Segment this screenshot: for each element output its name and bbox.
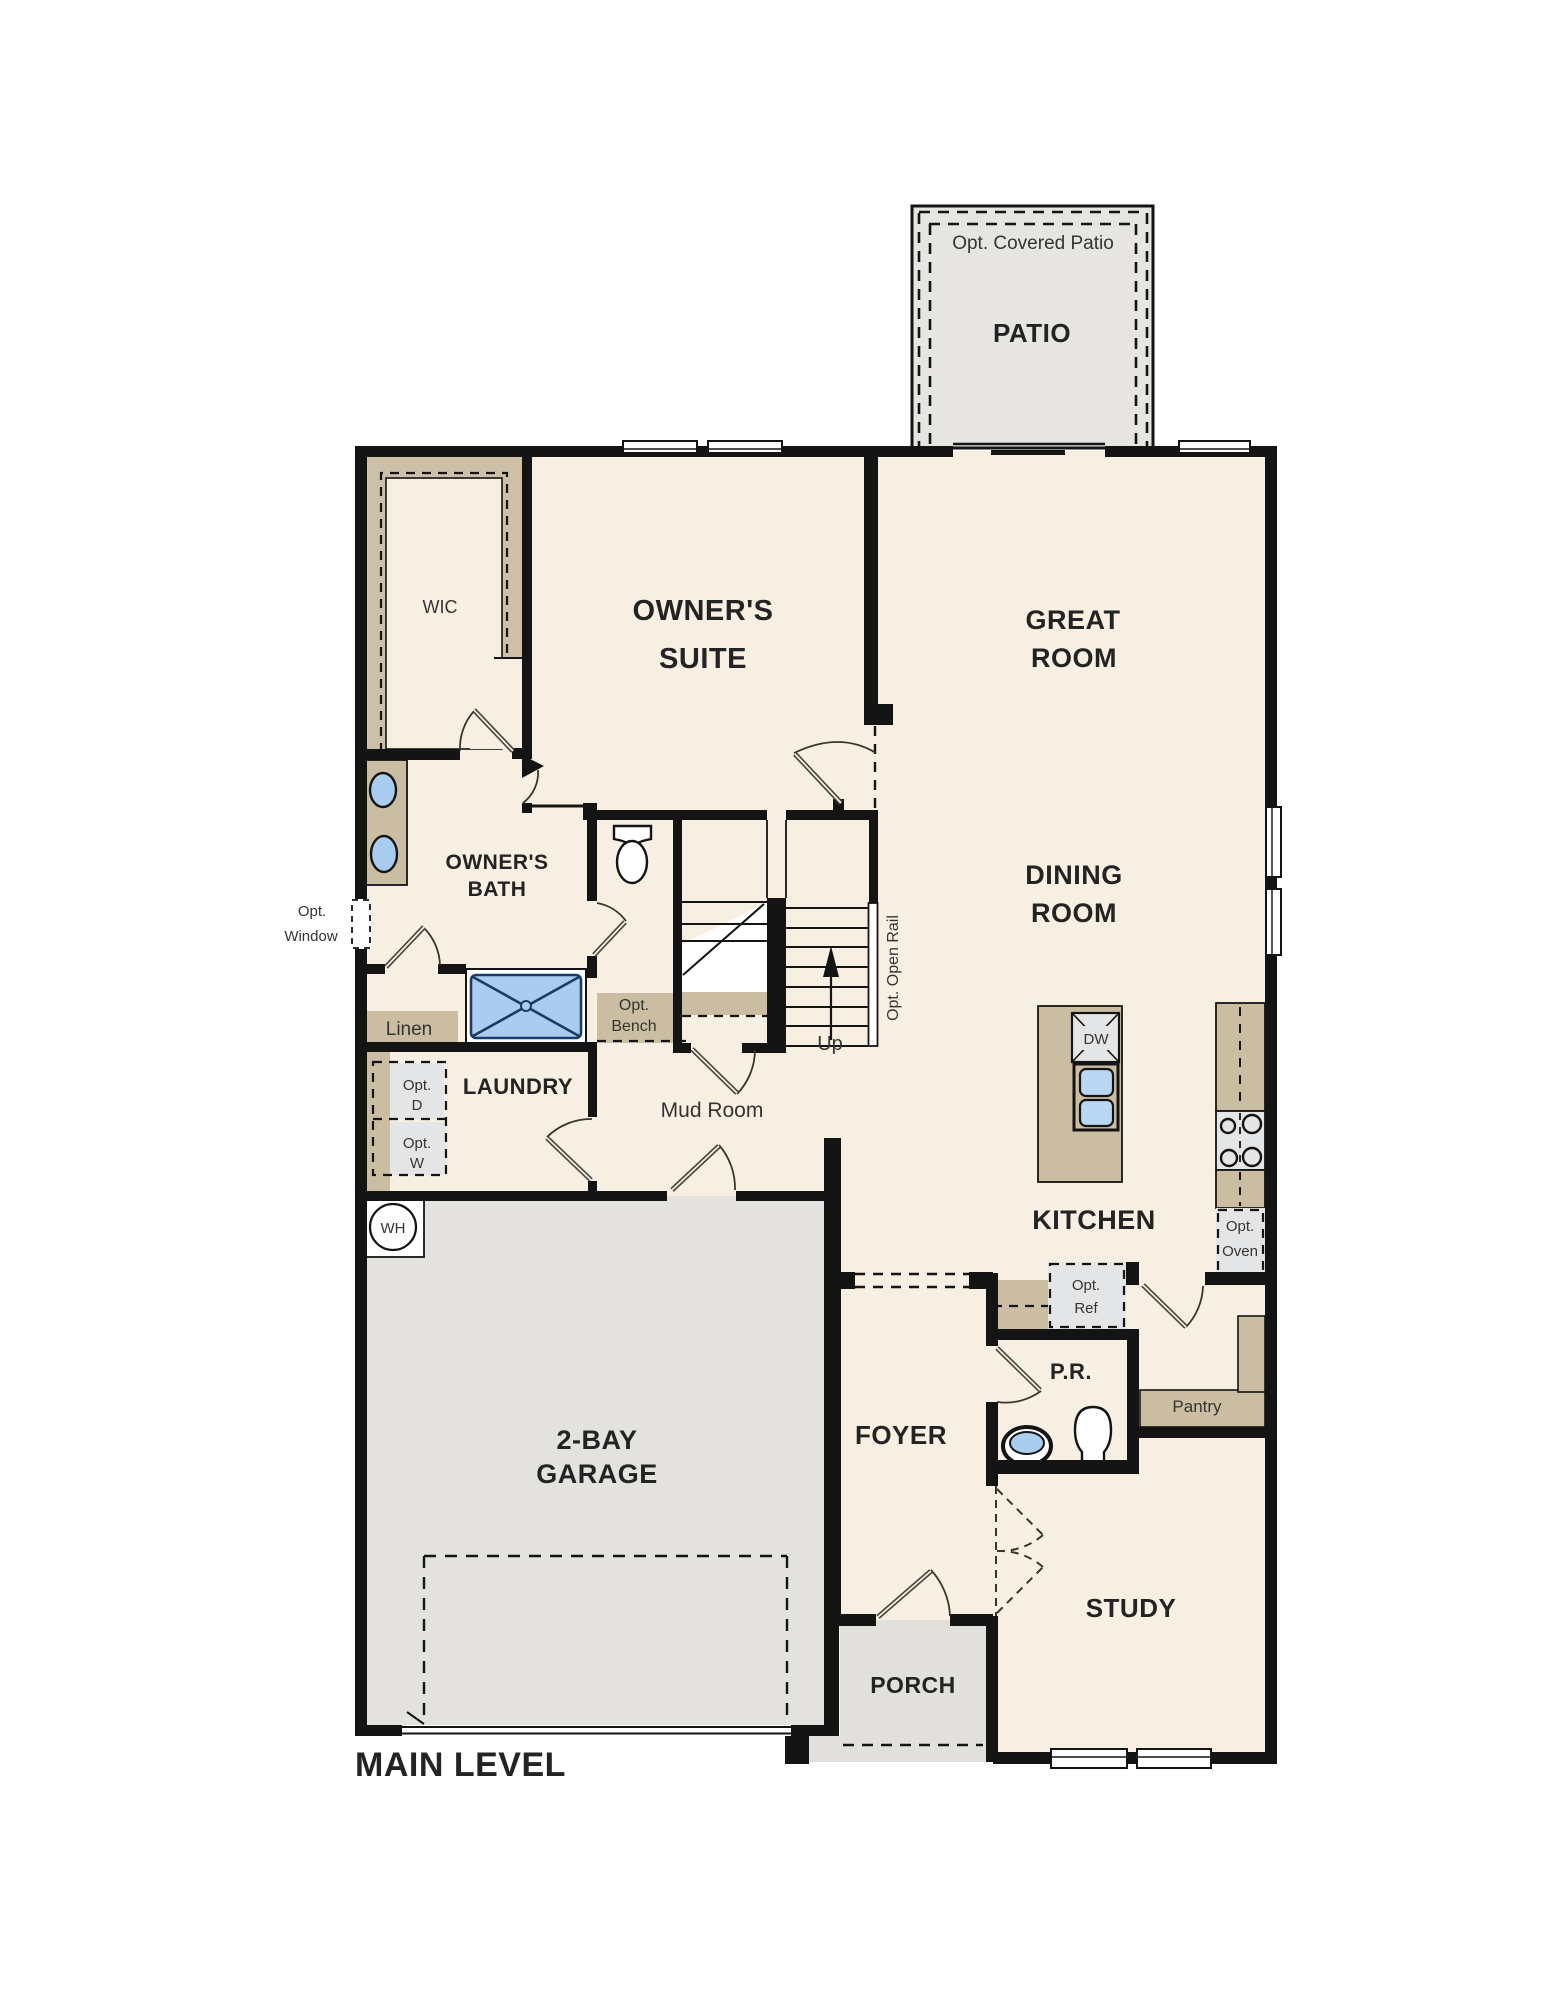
svg-text:Oven: Oven — [1222, 1243, 1258, 1260]
svg-text:KITCHEN: KITCHEN — [1032, 1205, 1156, 1235]
svg-text:D: D — [412, 1097, 423, 1114]
svg-text:Linen: Linen — [386, 1019, 433, 1040]
svg-text:P.R.: P.R. — [1050, 1359, 1092, 1384]
svg-text:MAIN LEVEL: MAIN LEVEL — [355, 1746, 566, 1784]
svg-text:DINING: DINING — [1025, 860, 1123, 890]
svg-text:OWNER'S: OWNER'S — [633, 595, 774, 627]
svg-text:WIC: WIC — [423, 597, 458, 617]
svg-text:WH: WH — [381, 1220, 406, 1237]
svg-text:Window: Window — [284, 928, 338, 945]
svg-text:Ref: Ref — [1074, 1300, 1098, 1317]
svg-text:DW: DW — [1084, 1031, 1110, 1048]
svg-text:Opt.: Opt. — [298, 903, 326, 920]
svg-text:SUITE: SUITE — [659, 643, 747, 675]
svg-text:STUDY: STUDY — [1086, 1593, 1177, 1623]
svg-text:Opt.: Opt. — [1072, 1277, 1100, 1294]
svg-text:Opt.: Opt. — [403, 1077, 431, 1094]
svg-text:Opt. Covered Patio: Opt. Covered Patio — [952, 233, 1114, 254]
svg-text:Up: Up — [817, 1033, 843, 1055]
svg-text:Bench: Bench — [611, 1018, 656, 1035]
svg-text:FOYER: FOYER — [855, 1420, 947, 1450]
svg-text:Opt.: Opt. — [1226, 1218, 1254, 1235]
svg-text:PATIO: PATIO — [993, 318, 1071, 348]
svg-text:Mud Room: Mud Room — [661, 1099, 764, 1122]
svg-text:2-BAY: 2-BAY — [556, 1425, 637, 1455]
svg-text:GARAGE: GARAGE — [536, 1459, 658, 1489]
svg-text:ROOM: ROOM — [1031, 643, 1117, 673]
svg-text:GREAT: GREAT — [1026, 605, 1121, 635]
svg-text:Pantry: Pantry — [1172, 1397, 1222, 1416]
svg-text:ROOM: ROOM — [1031, 898, 1117, 928]
svg-text:Opt.: Opt. — [403, 1135, 431, 1152]
svg-text:OWNER'S: OWNER'S — [446, 851, 549, 874]
svg-text:LAUNDRY: LAUNDRY — [463, 1074, 573, 1099]
svg-text:Opt. Open Rail: Opt. Open Rail — [885, 915, 902, 1021]
svg-text:Opt.: Opt. — [619, 997, 649, 1014]
svg-text:W: W — [410, 1155, 425, 1172]
svg-text:PORCH: PORCH — [870, 1672, 956, 1698]
svg-text:BATH: BATH — [468, 878, 527, 901]
